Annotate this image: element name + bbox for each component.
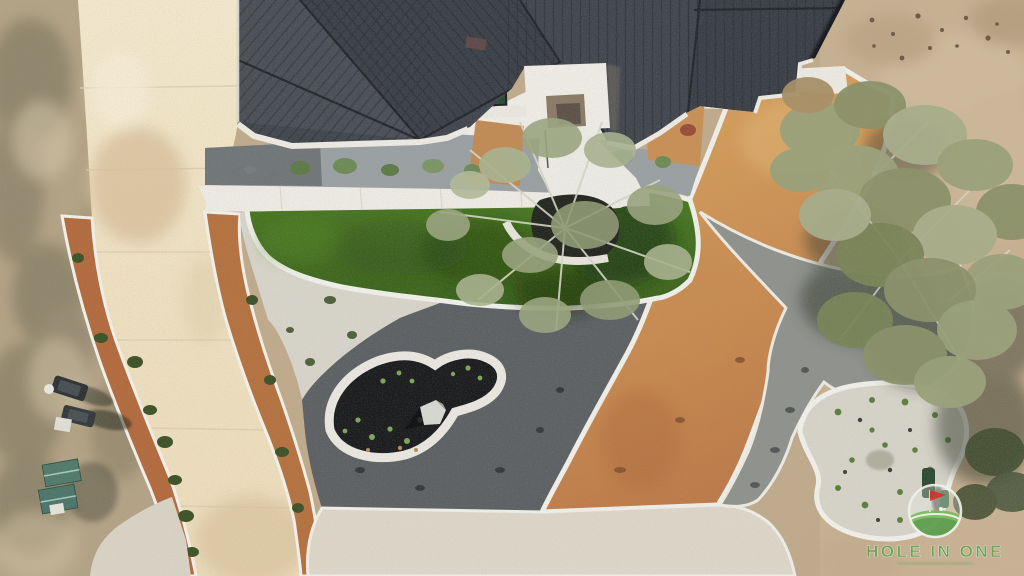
aerial-photo: HOLE IN ONE [0,0,1024,576]
texture-overlays [0,0,1024,576]
watermark-brand-text: HOLE IN ONE [866,542,1004,561]
golf-flag-on-green-icon [908,484,962,538]
watermark-tagline-blur [897,562,973,565]
